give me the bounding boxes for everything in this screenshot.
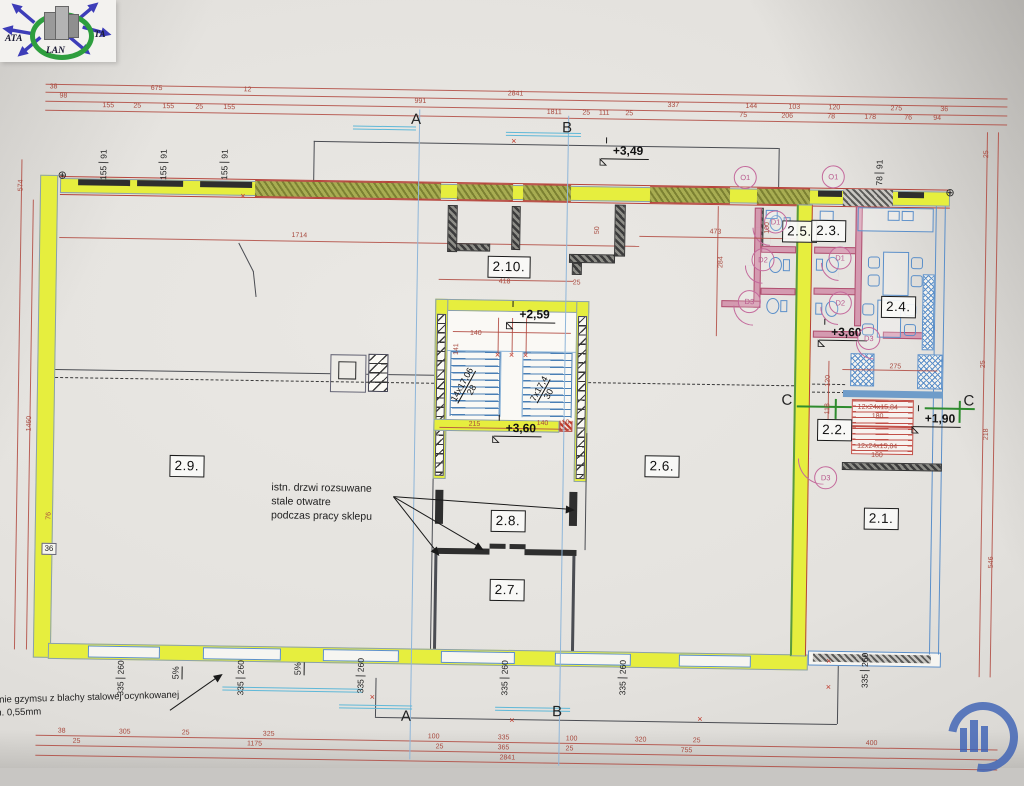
room-label: 2.9.: [169, 455, 204, 477]
vestibule-wall-side: [571, 556, 575, 651]
dimension-value: 991: [415, 98, 427, 105]
dimension-value: 473: [710, 228, 722, 235]
dimension-value: 36: [940, 106, 948, 113]
cross-mark: ×: [826, 682, 831, 692]
dimension-value: 25: [573, 279, 581, 286]
column-hatch: [368, 354, 389, 392]
logo-text-lan: LAN: [46, 46, 65, 56]
dimension-value: 25: [182, 729, 190, 736]
section-tick: [835, 399, 837, 419]
window-height: 91: [219, 149, 229, 163]
outline-line: [778, 148, 780, 190]
toilet-tank: [780, 300, 787, 312]
dimension-value: 305: [119, 728, 131, 735]
wall-hatched-segment: [757, 188, 810, 206]
slope-label: 5%: [170, 666, 182, 679]
door-swing-arc: [745, 266, 763, 284]
room-label: 2.3.: [811, 220, 846, 242]
chair: [862, 323, 874, 335]
window-height: 91: [874, 160, 884, 174]
chair: [911, 257, 923, 269]
break-line: [253, 271, 257, 297]
floor-plan: istn. drzwi rozsuwane stale otwatre podc…: [0, 0, 1024, 783]
door-note-line3: podczas pracy sklepu: [271, 509, 401, 525]
wall-hatched-segment: [457, 183, 513, 201]
window-lintel: [78, 179, 130, 186]
dim-chain: [36, 735, 998, 751]
partition-hatched: [511, 206, 521, 250]
window-opening: [323, 649, 399, 662]
wall-thickness-label: 36: [41, 543, 56, 555]
dimension-value: 400: [866, 740, 878, 747]
door-note: istn. drzwi rozsuwane stale otwatre podc…: [271, 480, 402, 525]
table: [882, 252, 909, 296]
dimension-value: 144: [745, 103, 757, 110]
chair: [904, 324, 916, 336]
window-opening: [555, 653, 631, 666]
dimension-value: 103: [788, 104, 800, 111]
dim-chain: [979, 132, 988, 677]
column-core: [338, 361, 356, 379]
window-lintel: [818, 191, 842, 197]
dimension-value: 2841: [499, 754, 515, 761]
dimension-value: 25: [625, 110, 633, 117]
dimension-value: 100: [566, 735, 578, 742]
window-height: 91: [158, 149, 168, 163]
window-lintel: [137, 180, 183, 187]
cyan-mark: [222, 687, 362, 693]
window-opening: [203, 647, 281, 660]
wall-left: [33, 175, 58, 658]
room-label: 2.10.: [487, 256, 530, 278]
dimension-value: 178: [864, 114, 876, 121]
dimension-value: 218: [983, 428, 990, 440]
dimension-value: 1714: [291, 232, 307, 239]
dimension-value: 755: [681, 747, 693, 754]
dimension-value: 325: [263, 731, 275, 738]
window-size-label: 15591: [158, 149, 168, 180]
stamp-bar: [981, 726, 988, 752]
partition-hatched: [842, 462, 942, 472]
washbasin: [766, 210, 778, 219]
cyan-mark: [353, 125, 416, 130]
dimension-value: 320: [635, 736, 647, 743]
stamp-bar: [970, 720, 978, 752]
section-tick: [959, 401, 961, 423]
door-leaf: [435, 490, 444, 524]
wall-hatched-segment: [255, 180, 441, 200]
stair-flight-left: [450, 351, 501, 417]
cyan-mark: [506, 132, 581, 137]
dimension-value: 275: [890, 105, 902, 112]
break-line: [238, 243, 253, 272]
window-width: 78: [874, 176, 884, 186]
window-size-label: 15591: [219, 149, 229, 180]
room-label: 2.1.: [864, 508, 899, 530]
vestibule-wall: [524, 549, 576, 556]
window-height: 91: [98, 149, 108, 163]
dimension-value: 335: [498, 734, 510, 741]
dimension-value: 155: [162, 103, 174, 110]
dimension-value: 284: [717, 256, 724, 268]
window-size-label: 15591: [98, 149, 108, 180]
dimension-value: 1811: [547, 109, 562, 116]
wall-hatched-segment: [523, 184, 571, 202]
window-lintel: [200, 181, 252, 188]
logo-arrow-icon: [8, 0, 37, 26]
cross-mark: ×: [370, 692, 375, 702]
door-leaf: [510, 544, 526, 549]
dim-line: [827, 361, 829, 431]
dim-chain: [26, 200, 34, 650]
dim-chain: [45, 92, 1007, 108]
dimension-value: 365: [498, 744, 510, 751]
stair-wall-bottom: [433, 419, 559, 433]
toilet-bowl: [766, 298, 779, 314]
dimension-value: 25: [582, 110, 590, 117]
chair: [911, 275, 923, 287]
chair: [904, 304, 916, 316]
logo-text-ata: ATA: [5, 34, 22, 44]
chair: [868, 274, 880, 286]
partition-hatched: [456, 243, 490, 252]
window-opening: [441, 651, 515, 664]
dimension-value: 76: [904, 114, 912, 121]
window-height: 260: [236, 660, 246, 678]
outline-line: [837, 662, 839, 724]
chair: [868, 256, 880, 268]
window-opening: [88, 645, 160, 658]
opening-mark: O1: [822, 165, 845, 188]
dimension-value: 155: [102, 102, 114, 109]
vestibule-wall-side: [433, 554, 437, 649]
dimension-value: 111: [599, 110, 610, 117]
dim-line: [439, 279, 574, 282]
table: [877, 300, 902, 338]
partition-hatched: [572, 263, 582, 275]
dim-chain: [990, 132, 999, 677]
window-size-label: 7891: [874, 160, 884, 186]
dim-line: [59, 237, 639, 247]
dimension-value: 25: [693, 737, 701, 744]
dimension-value: 206: [781, 113, 793, 120]
radiator: [922, 274, 935, 350]
cyan-mark: [495, 707, 570, 712]
section-letter: C: [781, 392, 792, 409]
dimension-value: 1175: [247, 740, 262, 747]
window-width: 335: [499, 681, 509, 695]
cornice-note: erznie gzymsu z blachy stalowej ocynkowa…: [0, 688, 216, 720]
room-label: 2.6.: [644, 455, 679, 477]
logo-building: [68, 14, 79, 38]
room-label: 2.2.: [817, 419, 852, 441]
kitchen-sink: [888, 211, 900, 221]
cyan-mark: [339, 704, 412, 709]
axis-line-b: [558, 116, 569, 766]
dimension-value: 38: [58, 728, 66, 735]
kitchen-sink: [902, 211, 914, 221]
dimension-value: 98: [59, 92, 67, 99]
partition-pink: [760, 288, 795, 296]
wall-hatched-segment: [650, 186, 730, 204]
dimension-value: 25: [133, 103, 141, 110]
wall-gray-segment: [843, 189, 893, 207]
window-width: 335: [859, 674, 869, 688]
dimension-value: 100: [428, 733, 440, 740]
chair: [862, 303, 874, 315]
stamp-logo-icon: [944, 700, 1024, 768]
dimension-value: 337: [667, 102, 679, 109]
dim-chain: [45, 110, 1007, 126]
toilet-bowl: [769, 257, 782, 273]
partition-pink: [761, 246, 796, 254]
shaft-hatch: [917, 354, 943, 389]
window-width: 335: [617, 681, 627, 695]
outline-line: [375, 717, 837, 725]
dimension-value: 120: [828, 104, 840, 111]
room-label: 2.8.: [491, 510, 526, 532]
dimension-value: 75: [739, 112, 747, 119]
dimension-value: 25: [566, 745, 574, 752]
axis-dashed-line: [588, 382, 794, 386]
dimension-value: 25: [436, 743, 444, 750]
dimension-value: 25: [73, 738, 81, 745]
partition-pink: [814, 247, 858, 255]
dimension-value: 50: [594, 226, 601, 234]
partition-hatched: [614, 205, 626, 257]
window-opening: [679, 655, 751, 668]
dim-chain: [45, 101, 1007, 117]
dim-chain: [46, 84, 1008, 100]
dimension-value: 155: [223, 104, 235, 111]
outline-line: [314, 141, 779, 149]
partition-pink: [813, 331, 858, 339]
partition-pink: [813, 288, 857, 296]
logo-text-ta: TA: [94, 30, 106, 40]
wall-middle-vertical: [790, 204, 813, 656]
outline-line: [375, 678, 377, 717]
outline-line: [313, 141, 315, 183]
door-swing-arc: [821, 263, 839, 281]
washbasin: [820, 211, 834, 221]
company-logo: ATA TA LAN: [0, 0, 116, 62]
dimension-value: 25: [195, 104, 203, 111]
toilet-tank: [783, 259, 790, 271]
window-height: 260: [116, 660, 126, 678]
dimension-value: 94: [933, 115, 941, 122]
toilet-tank: [783, 217, 790, 229]
dim-chain: [14, 159, 23, 649]
wall-blue-filled: [843, 390, 943, 399]
slope-label: 5%: [293, 662, 305, 675]
door-leaf: [490, 544, 506, 549]
dim-line: [716, 206, 719, 336]
stamp-bar: [960, 728, 967, 752]
annotation-arrow: [393, 496, 573, 510]
door-swing-arc: [733, 305, 753, 325]
logo-building: [55, 6, 69, 40]
window-lintel: [898, 192, 924, 198]
door-swing-arc: [820, 307, 838, 325]
dimension-value: 78: [827, 113, 835, 120]
room-label: 2.7.: [489, 579, 524, 601]
